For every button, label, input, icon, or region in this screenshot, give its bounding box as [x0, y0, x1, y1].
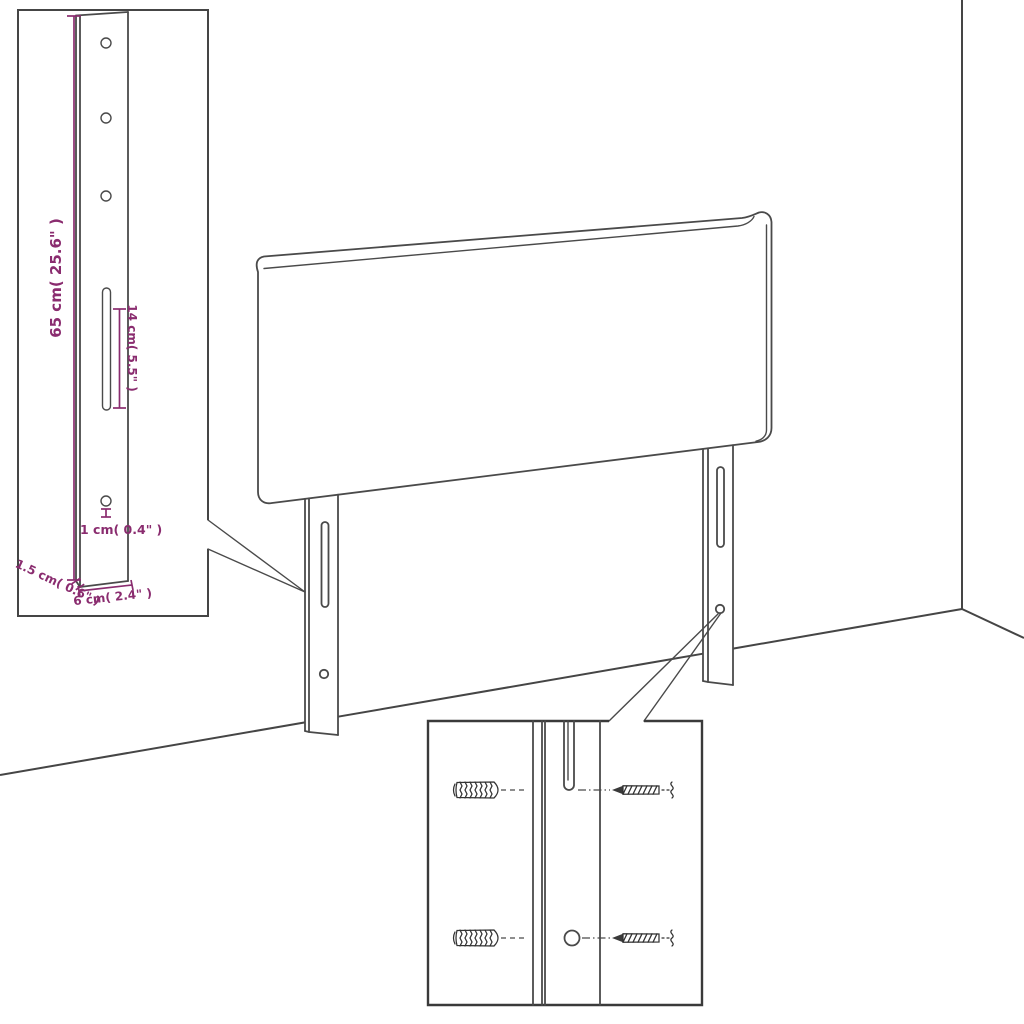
inset-leg-top-edge [76, 12, 128, 16]
screw-threads [623, 934, 657, 942]
screw-tip [612, 786, 623, 794]
wall-corner [0, 0, 1024, 775]
wall-plug-upper [454, 782, 499, 798]
inset-leg-hole-3 [101, 191, 111, 201]
headboard-right-leg [703, 445, 733, 685]
left-leg-bottom-edge [305, 731, 338, 735]
screw-tip [612, 934, 623, 942]
callout-line-screws-right [644, 613, 721, 721]
wall-plug-lower [454, 930, 499, 946]
wall-plug-texture [460, 782, 492, 798]
headboard-panel [257, 212, 772, 503]
inset-leg [76, 12, 128, 587]
panel-right-edge-inner-line [756, 225, 767, 441]
floor-edge-right [962, 609, 1024, 638]
dimension-slot-length: 14 cm( 5.5" ) [113, 304, 139, 408]
headboard-drawing [257, 212, 772, 735]
right-leg-hole [716, 605, 724, 613]
screw-upper [612, 782, 673, 798]
right-leg-bottom-edge [703, 681, 733, 685]
dimension-hole-diameter: 1 cm( 0.4" ) [80, 509, 162, 537]
screw-lower [612, 930, 673, 946]
headboard-left-leg [305, 495, 338, 735]
screw-inset-frame [428, 721, 702, 1005]
floor-line-middle [338, 654, 703, 717]
wall-plug-texture [460, 930, 492, 946]
left-leg-hole [320, 670, 328, 678]
screw-break-squiggle [662, 782, 673, 798]
inset-leg-slot [103, 288, 111, 410]
headboard-diagram-svg: 65 cm( 25.6" ) 14 cm( 5.5" ) 1 cm( 0.4" … [0, 0, 1024, 1024]
screw-threads [623, 786, 657, 794]
dim-label-hole-diameter: 1 cm( 0.4" ) [80, 522, 162, 537]
screw-break-squiggle [662, 930, 673, 946]
floor-line-right [733, 609, 962, 649]
left-leg-slot [322, 522, 329, 607]
dim-label-leg-height: 65 cm( 25.6" ) [47, 218, 65, 338]
screw-detail-inset [428, 613, 721, 1005]
inset-leg-hole-4 [101, 496, 111, 506]
screw-inset-leg-strip [533, 721, 600, 1005]
strip-slot [564, 721, 574, 790]
floor-line-left [0, 722, 305, 775]
diagram-canvas: 65 cm( 25.6" ) 14 cm( 5.5" ) 1 cm( 0.4" … [0, 0, 1024, 1024]
dimension-leg-width: 6 cm( 2.4" ) [73, 580, 153, 608]
leg-dimension-inset: 65 cm( 25.6" ) 14 cm( 5.5" ) 1 cm( 0.4" … [13, 10, 305, 616]
panel-top-rim-line [264, 217, 754, 269]
panel-outline [257, 212, 772, 503]
inset-leg-hole-2 [101, 113, 111, 123]
strip-hole [565, 931, 580, 946]
dim-label-slot-length: 14 cm( 5.5" ) [125, 304, 139, 391]
inset-leg-hole-1 [101, 38, 111, 48]
right-leg-slot [717, 467, 724, 547]
